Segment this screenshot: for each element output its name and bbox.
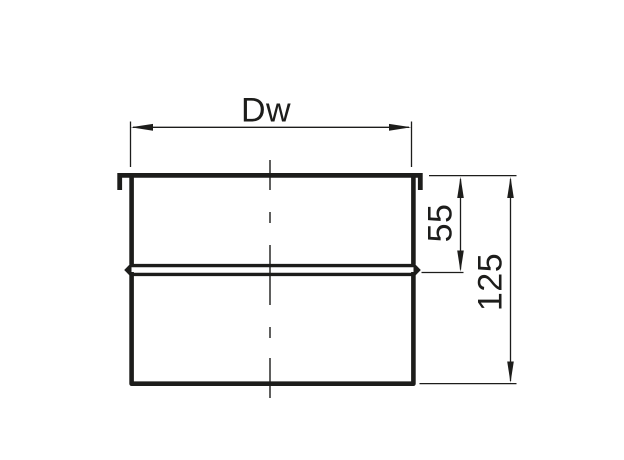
- h125-arrow-down: [507, 362, 514, 383]
- h125-arrow-up: [507, 177, 514, 198]
- h55-dimension-label: 55: [422, 204, 460, 243]
- dw-dimension-label: Dw: [241, 92, 291, 130]
- h125-dimension-label: 125: [472, 253, 510, 311]
- h55-arrow-up: [457, 177, 464, 198]
- dimension-upper-section-height: 55: [422, 177, 464, 273]
- dw-arrow-left: [131, 124, 153, 131]
- drawing-canvas: Dw 55 125: [0, 0, 624, 460]
- lower-shell-outline: [132, 272, 414, 384]
- dw-arrow-right: [389, 124, 411, 131]
- dimension-inner-diameter: Dw: [131, 92, 412, 168]
- technical-drawing-pipe-socket: Dw 55 125: [0, 0, 624, 460]
- h55-arrow-down: [457, 251, 464, 272]
